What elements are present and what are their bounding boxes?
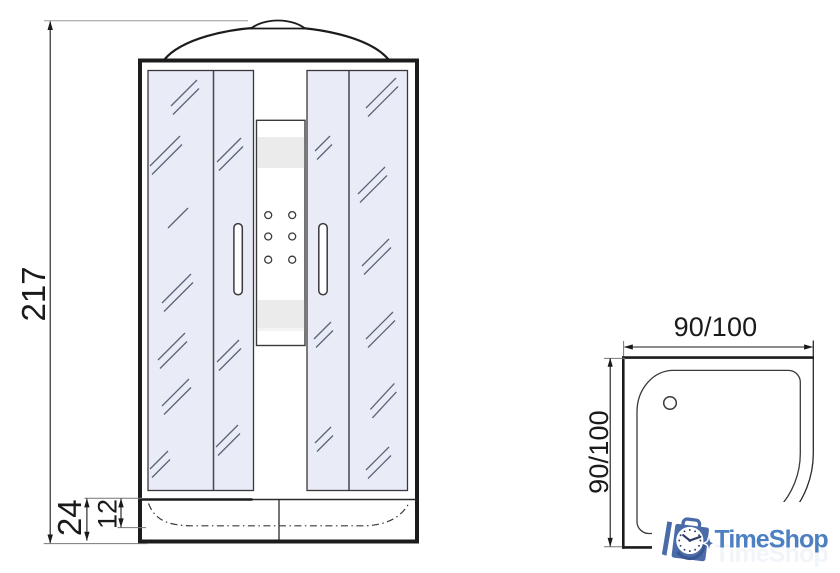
svg-text:TimeShop: TimeShop (715, 540, 829, 568)
svg-text:24: 24 (51, 499, 88, 536)
svg-text:90/100: 90/100 (584, 410, 614, 494)
svg-text:90/100: 90/100 (674, 312, 758, 342)
svg-text:12: 12 (92, 499, 122, 529)
svg-text:217: 217 (15, 266, 52, 321)
